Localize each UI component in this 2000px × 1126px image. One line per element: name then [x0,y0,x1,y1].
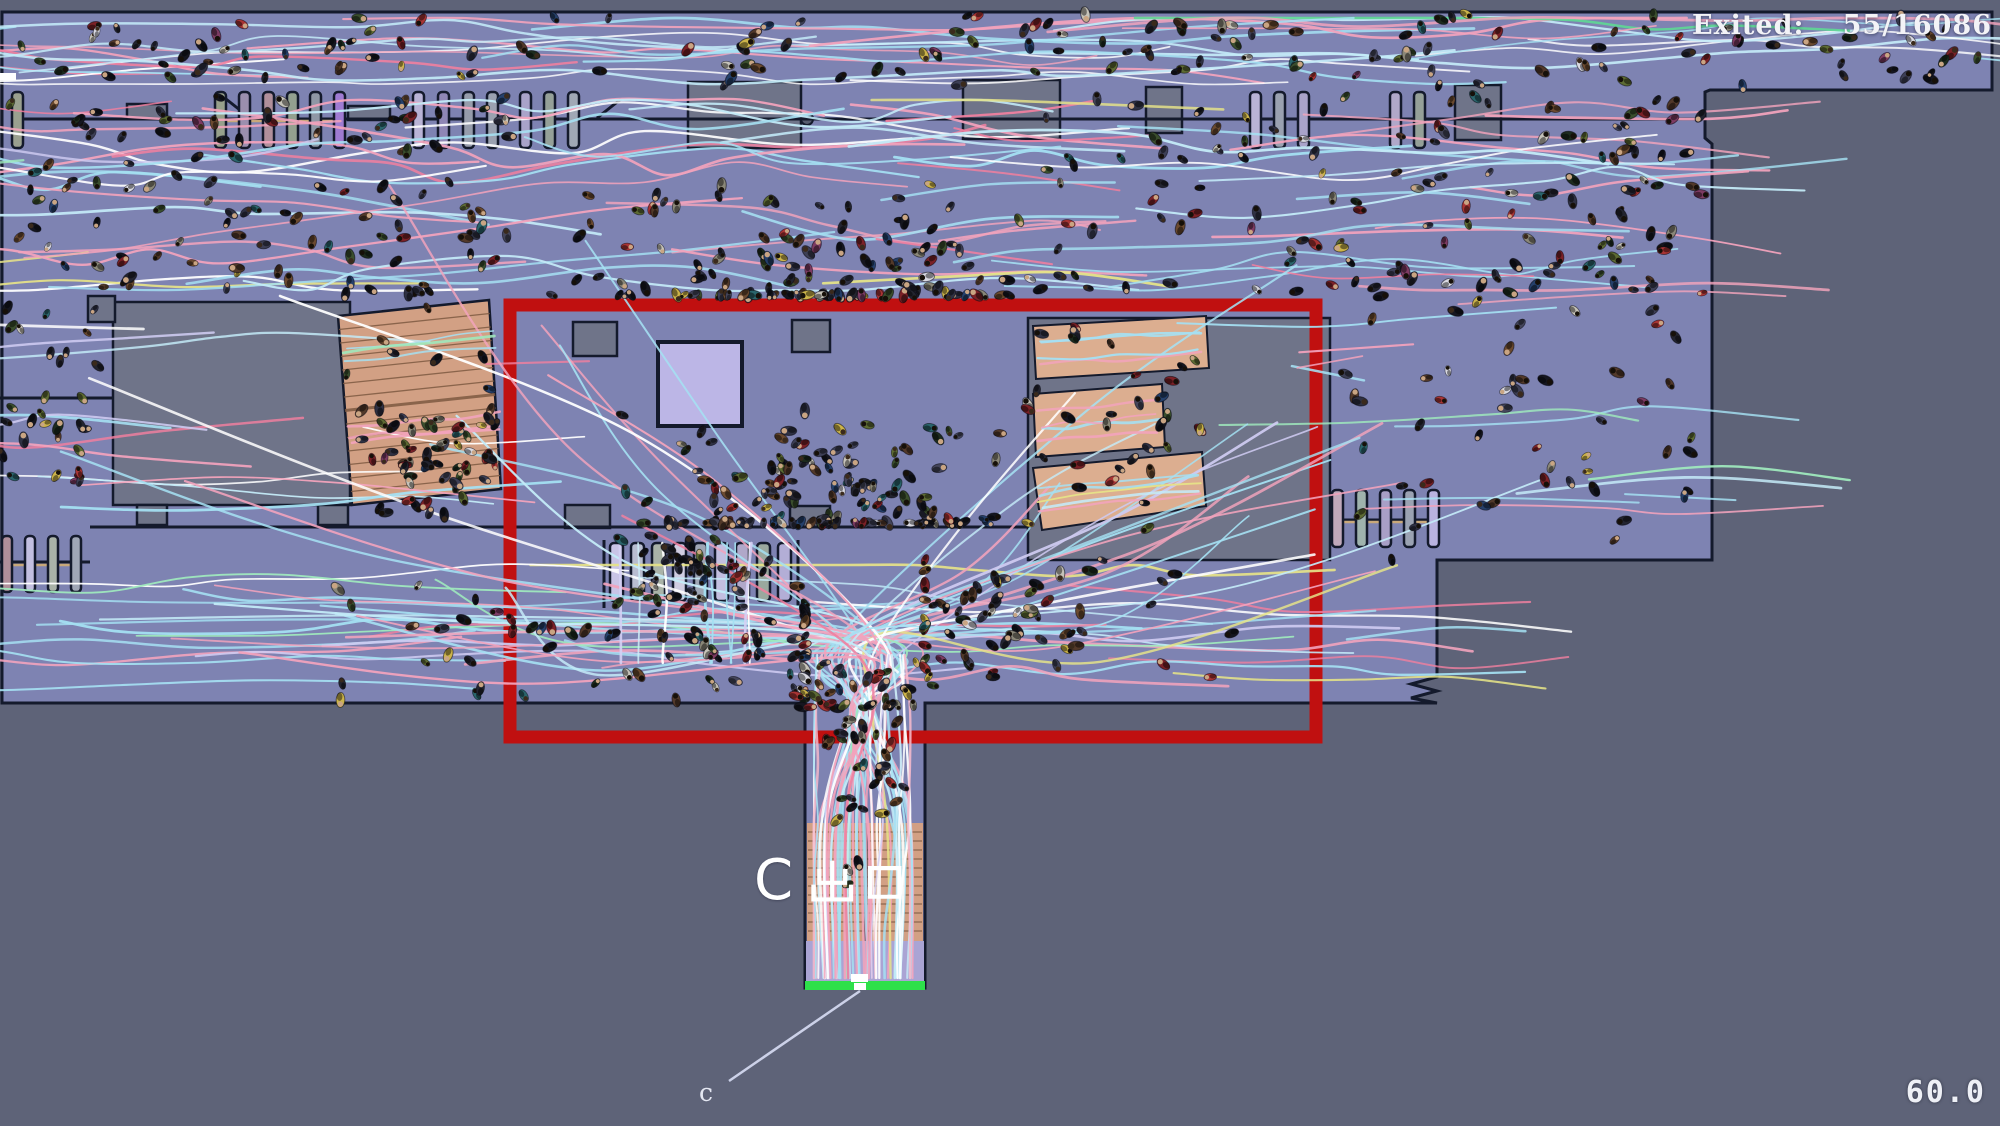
agent [1289,27,1304,36]
agent [93,176,101,189]
fare-gate [544,92,555,148]
agent [256,240,270,249]
agent [701,610,708,622]
agent [800,403,810,419]
agent [790,581,805,590]
agent [799,654,811,661]
agent [1402,46,1412,62]
agent [404,286,413,302]
agent [787,478,798,485]
exit-sign-label: C [754,858,907,904]
floorplan-canvas [0,0,2000,1126]
sim-clock: 60.0 [1906,1075,1986,1110]
agent [284,273,293,288]
agent [835,288,843,302]
exit-leader-label: c [699,1078,713,1107]
agent [1204,673,1217,681]
obstacle-block [318,505,348,525]
exited-counter: Exited: 55/16086 [1692,10,1992,41]
agent [709,493,718,508]
agent [235,133,243,147]
glyph-chu [813,861,851,900]
obstacle-block [1146,87,1182,133]
service-block [658,342,742,426]
agent [1217,19,1227,35]
glyph-kou [870,868,899,897]
agent [919,493,932,501]
simulation-viewport: Exited: 55/16086 60.0 C c [0,0,2000,1126]
agent [1592,43,1607,52]
agent [1241,135,1248,146]
agent [1055,566,1065,582]
agent [621,243,634,251]
agent [1263,20,1279,30]
agent [1582,468,1593,475]
agent [1068,641,1084,651]
agent [1766,40,1781,49]
obstacle-block [792,320,830,352]
fare-gate [1274,92,1285,148]
agent [875,809,890,818]
exited-value: 55/16086 [1843,10,1992,41]
agent [636,519,650,528]
agent [502,132,517,141]
agent [1497,404,1512,413]
agent [467,248,474,259]
agent [1070,460,1085,469]
exit-sign-letter: C [754,858,793,904]
fare-gate [1250,92,1261,148]
agent [1681,490,1689,503]
agent [986,673,1000,681]
obstacle-block [565,505,610,528]
agent [1657,247,1670,255]
fare-gate [1332,490,1343,547]
agent [347,135,363,145]
obstacle-block [137,505,167,525]
agent [1505,189,1518,197]
agent [1099,36,1106,47]
agent [1106,411,1117,418]
agent [1298,135,1310,142]
agent [472,594,479,605]
agent [375,400,384,416]
agent [27,184,33,195]
agent [336,692,345,707]
agent [1561,131,1577,141]
agent [1556,250,1564,264]
exit-marker-tick [854,983,866,990]
agent [1649,9,1657,23]
agent [1441,236,1448,248]
exit-sign-cjk-glyphs [809,858,907,904]
agent [843,715,856,723]
exit-marker-tick [851,974,868,982]
obstacle-block [573,322,617,356]
agent [490,608,504,616]
agent [263,107,272,123]
agent [787,669,794,680]
agent [365,53,379,61]
agent [955,244,963,258]
agent [804,703,817,711]
agent [1043,113,1049,123]
edge-tick [0,73,16,80]
agent [1053,48,1064,55]
agent [920,577,930,593]
exited-label: Exited: [1692,10,1804,41]
agent [1195,185,1206,191]
agent [1248,27,1256,40]
agent [98,284,108,290]
agent [870,481,877,492]
